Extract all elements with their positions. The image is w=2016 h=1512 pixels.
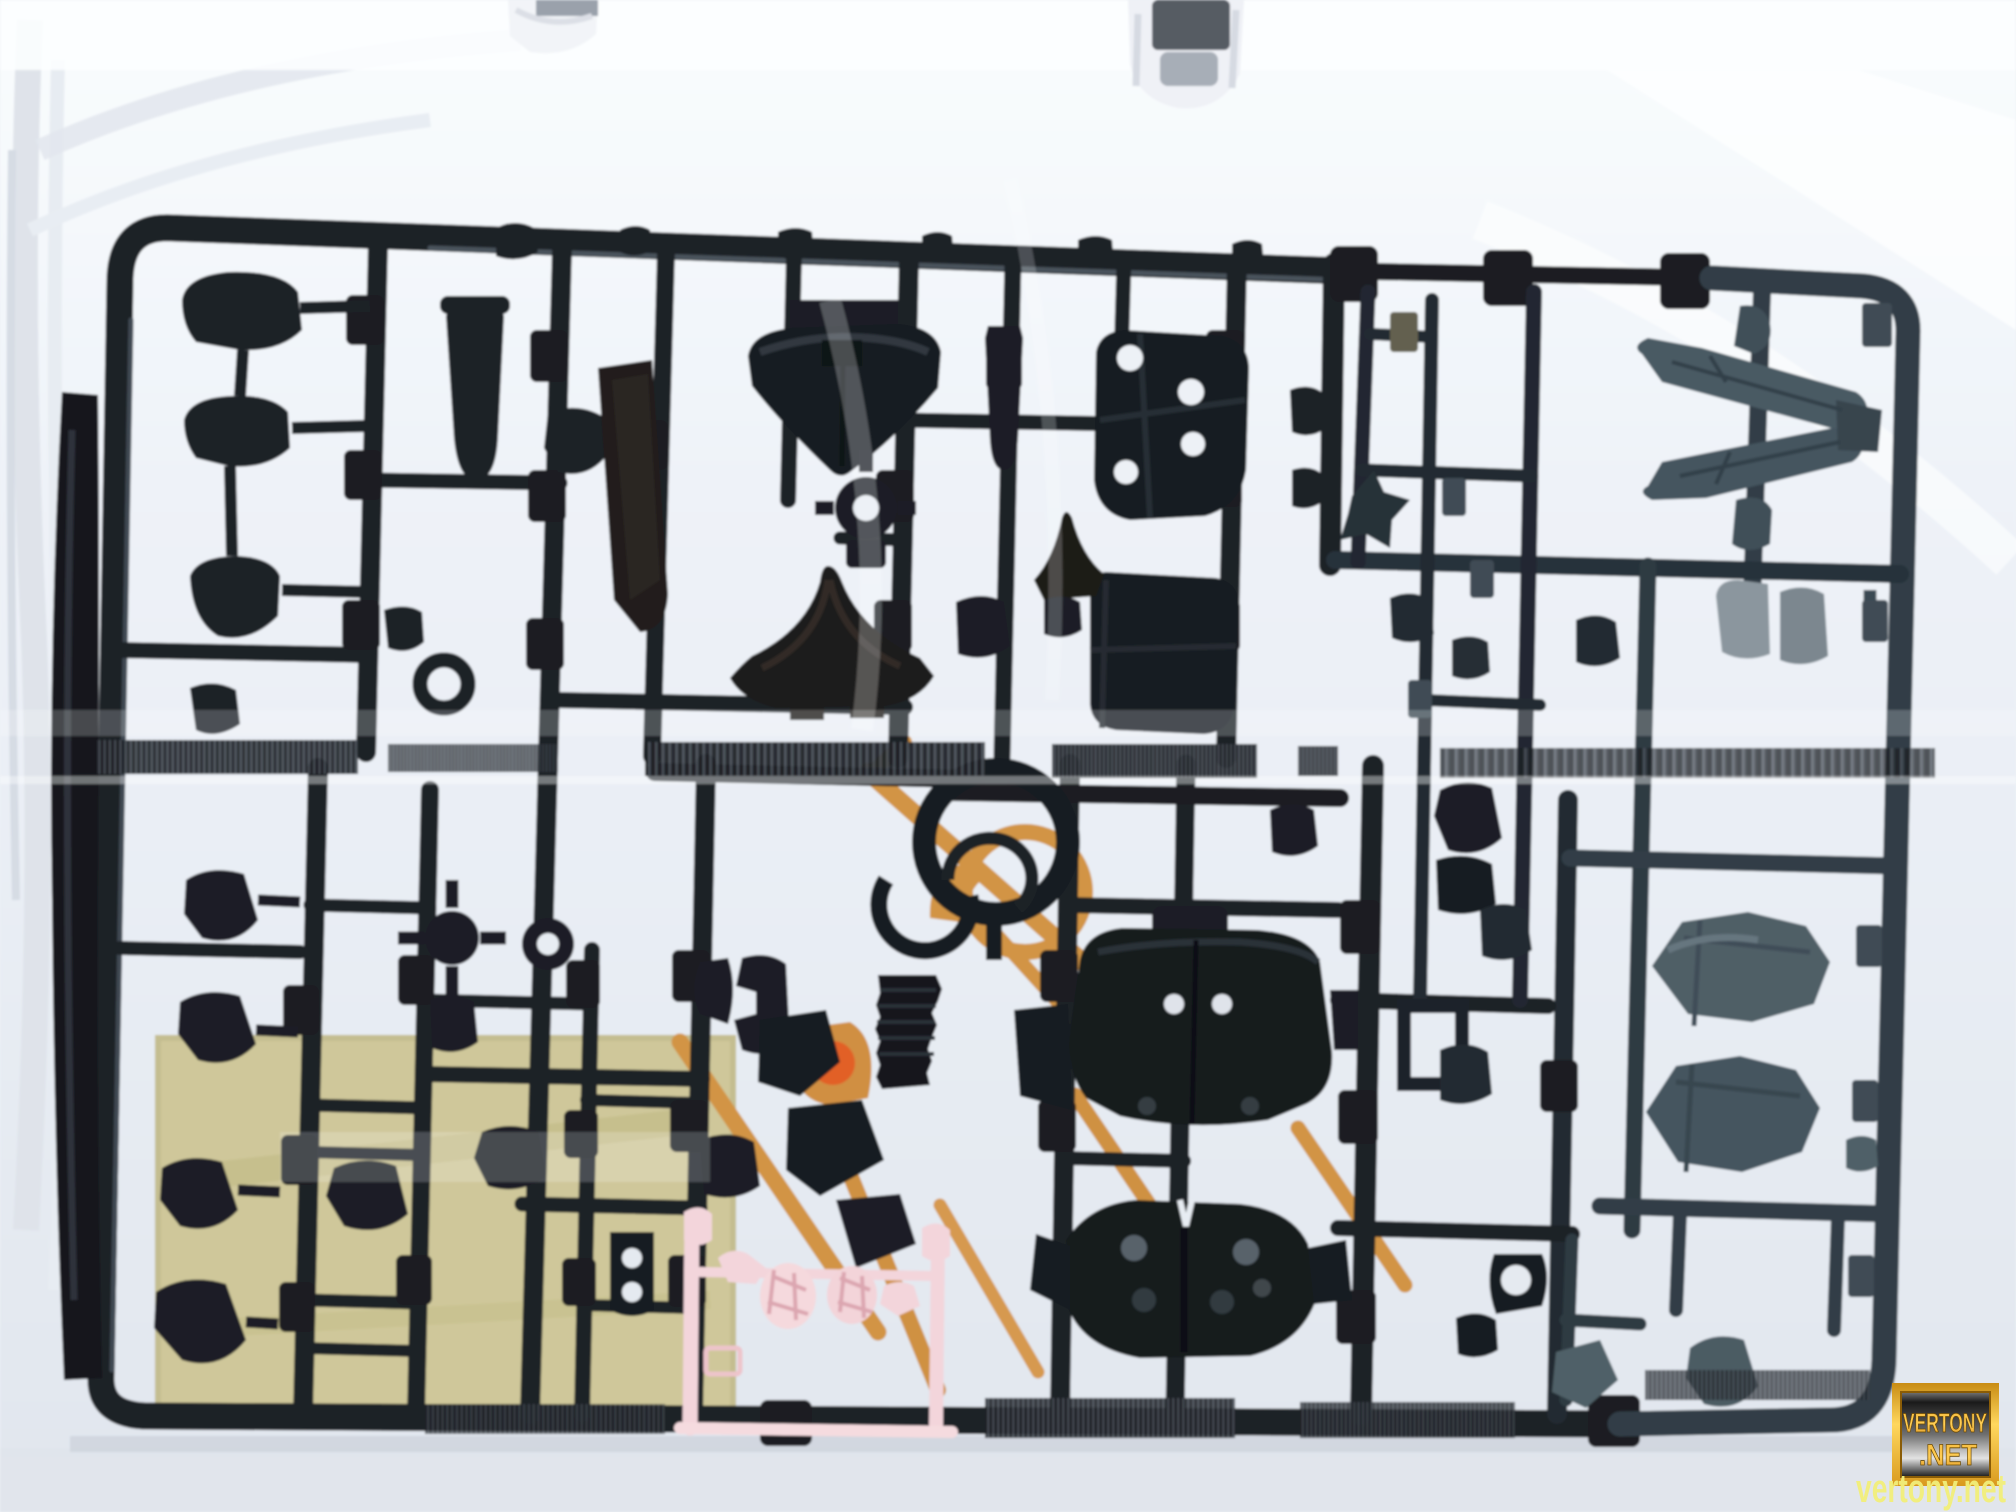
svg-text:VERTONY: VERTONY <box>1903 1408 1987 1438</box>
svg-text:vertony.net: vertony.net <box>1856 1467 2006 1511</box>
